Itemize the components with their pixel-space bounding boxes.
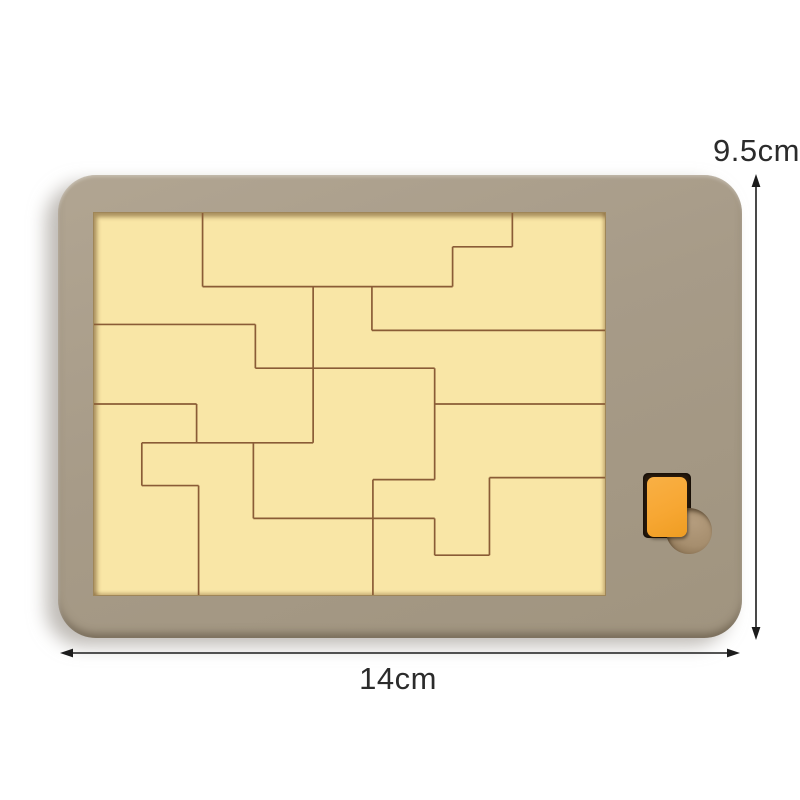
puzzle-board xyxy=(58,175,742,638)
height-arrow-icon xyxy=(748,172,764,642)
orange-piece xyxy=(647,477,687,537)
puzzle-recess xyxy=(93,212,606,596)
width-arrow-icon xyxy=(58,645,742,661)
height-dimension-label: 9.5cm xyxy=(713,133,797,169)
width-dimension-label: 14cm xyxy=(328,661,468,697)
product-photo: 9.5cm 14cm xyxy=(0,0,800,800)
puzzle-piece-outlines xyxy=(94,213,605,595)
